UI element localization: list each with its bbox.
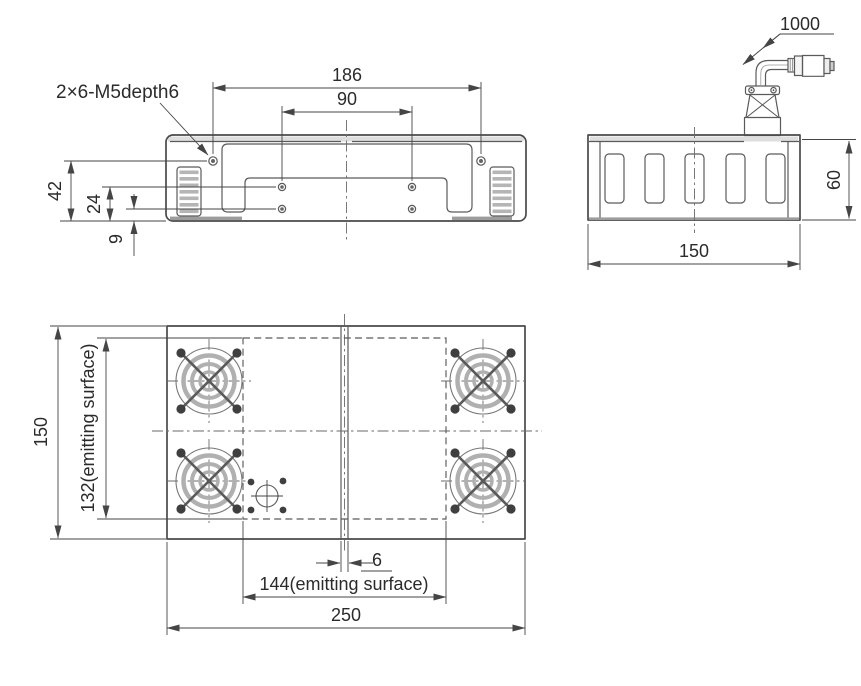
cable-elbow xyxy=(756,61,788,87)
dim-60-label: 60 xyxy=(824,170,844,190)
cable-plug xyxy=(788,56,834,77)
side-slot xyxy=(766,154,785,203)
dim-42-label: 42 xyxy=(45,181,65,201)
dim-144: 144(emitting surface) xyxy=(243,521,446,604)
dim-1000-label: 1000 xyxy=(780,14,820,34)
rib-block-right xyxy=(490,167,514,216)
fan-bottom-left xyxy=(167,439,251,523)
dim-90: 90 xyxy=(282,89,412,112)
front-shadow-left xyxy=(170,217,242,220)
fan-top-left xyxy=(167,339,251,423)
front-inner-contour xyxy=(222,144,472,212)
front-top-band xyxy=(168,137,524,142)
dim-42: 42 xyxy=(45,161,71,221)
technical-drawing-page: 186 90 42 24 9 2×6-M5depth6 xyxy=(0,0,861,686)
dim-24-label: 24 xyxy=(84,194,104,214)
mount-holes xyxy=(278,183,415,212)
dim-6: 6 xyxy=(316,541,392,572)
dim-60: 60 xyxy=(802,140,856,221)
top-view: 150 132(emitting surface) 6 144(emitting… xyxy=(31,314,542,635)
dim-6-label: 6 xyxy=(372,550,382,570)
m5-hole-right xyxy=(477,157,485,165)
connector-knurl-base xyxy=(745,118,781,136)
dim-150-top: 150 xyxy=(31,326,166,539)
front-view: 186 90 42 24 9 2×6-M5depth6 xyxy=(45,65,526,256)
dim-250-label: 250 xyxy=(331,605,361,625)
fan-top-right xyxy=(441,339,525,423)
fan-bottom-right xyxy=(441,439,525,523)
dim-132-label: 132(emitting surface) xyxy=(78,343,98,512)
side-view: 1000 60 150 xyxy=(588,14,856,270)
front-shadow-right xyxy=(452,217,512,220)
thread-note-leader xyxy=(160,103,208,155)
dim-150-side-label: 150 xyxy=(679,241,709,261)
cable-connector xyxy=(745,56,835,136)
dim-186-label: 186 xyxy=(332,65,362,85)
connector-neck xyxy=(746,95,779,118)
dim-9-label: 9 xyxy=(106,234,126,244)
dim-150-top-label: 150 xyxy=(31,417,51,447)
side-slots xyxy=(605,154,785,203)
dim-186: 186 xyxy=(213,65,481,88)
side-slot xyxy=(726,154,745,203)
dim-90-label: 90 xyxy=(337,89,357,109)
side-slot xyxy=(645,154,664,203)
dim-1000: 1000 xyxy=(743,14,834,65)
alignment-target xyxy=(248,478,287,514)
side-top-band xyxy=(590,137,798,142)
side-shadow xyxy=(589,217,799,220)
dim-144-label: 144(emitting surface) xyxy=(259,574,428,594)
dim-150-side: 150 xyxy=(588,224,800,270)
m5-hole-left xyxy=(209,157,217,165)
dimension-drawing: 186 90 42 24 9 2×6-M5depth6 xyxy=(0,0,861,686)
side-slot xyxy=(605,154,624,203)
thread-note-label: 2×6-M5depth6 xyxy=(56,82,179,103)
dim-24: 24 xyxy=(84,187,110,221)
thread-note: 2×6-M5depth6 xyxy=(56,82,208,155)
